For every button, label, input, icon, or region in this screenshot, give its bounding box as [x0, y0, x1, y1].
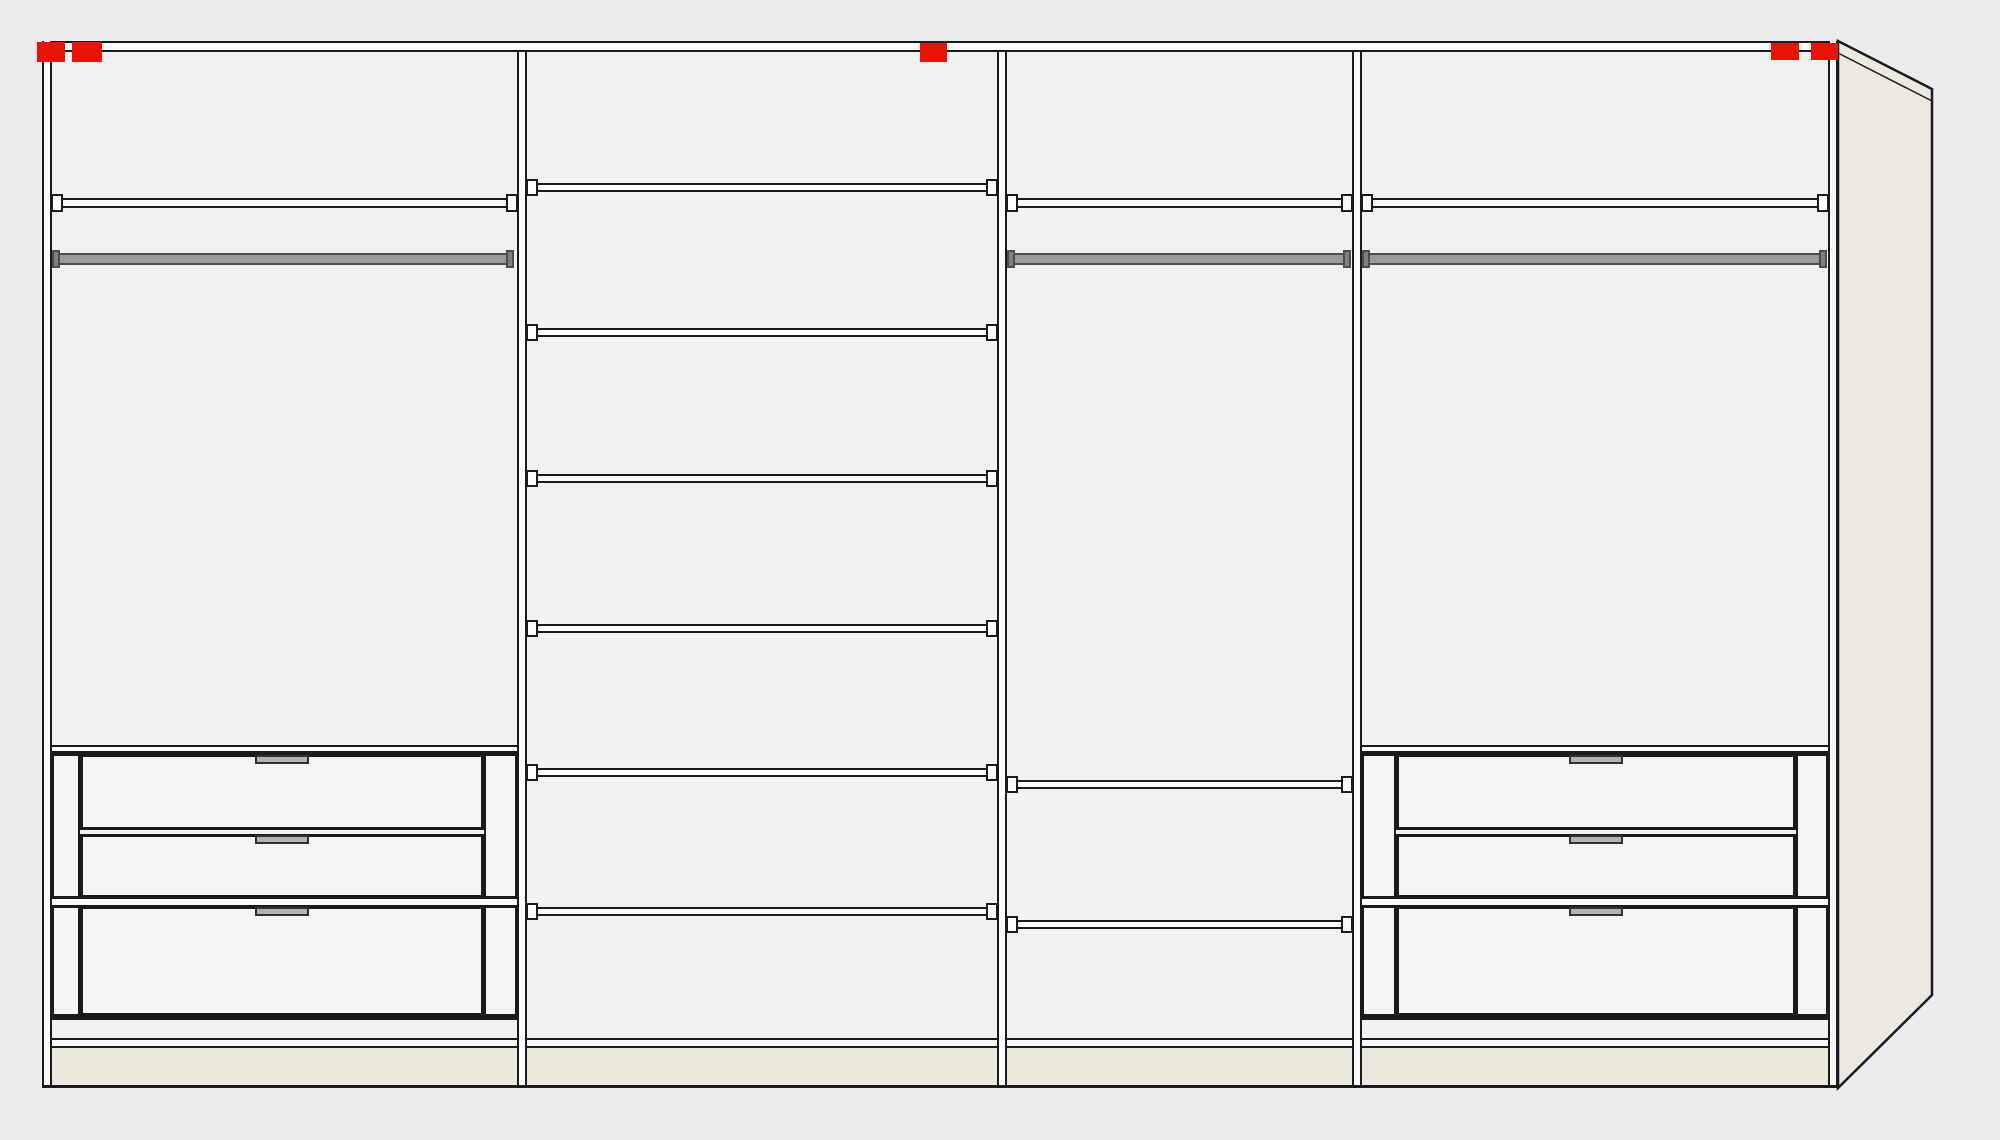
- drawer-unit-bottom-line: [1362, 1016, 1828, 1020]
- shelf-section-2[interactable]: [527, 624, 997, 633]
- frame-left-edge: [42, 41, 52, 1088]
- drawer-unit-top-section-4: [1362, 745, 1828, 754]
- shelf-section-2[interactable]: [527, 183, 997, 192]
- shelf-support: [1006, 194, 1018, 212]
- shelf-section-2[interactable]: [527, 768, 997, 777]
- clothes-rail-section-3[interactable]: [1013, 253, 1345, 265]
- shelf-section-4[interactable]: [1362, 198, 1828, 208]
- section-divider: [997, 52, 1007, 1085]
- section-divider: [517, 52, 527, 1085]
- drawer-stile: [1362, 906, 1396, 1016]
- shelf-support: [1361, 194, 1373, 212]
- shelf-section-2[interactable]: [527, 474, 997, 483]
- drawer-handle: [1569, 907, 1623, 916]
- shelf-support: [51, 194, 63, 212]
- wardrobe-configurator-canvas: [0, 0, 2000, 1140]
- marker-4[interactable]: [1771, 43, 1799, 60]
- shelf-section-1[interactable]: [52, 198, 517, 208]
- side-panel-face: [1838, 41, 1932, 1088]
- clothes-rail-section-4[interactable]: [1368, 253, 1821, 265]
- shelf-support: [526, 470, 538, 487]
- drawer-handle: [1569, 755, 1623, 764]
- drawer-handle: [255, 755, 309, 764]
- drawer-unit-top-section-1: [52, 745, 517, 754]
- drawer-stile: [1362, 754, 1396, 898]
- shelf-support: [526, 179, 538, 196]
- section-divider: [1352, 52, 1362, 1085]
- shelf-support: [526, 620, 538, 637]
- frame-right-edge: [1828, 41, 1838, 1088]
- drawer-stile: [52, 754, 80, 898]
- shelf-section-2[interactable]: [527, 907, 997, 916]
- frame-bottom-line: [42, 1085, 1838, 1088]
- shelf-section-3[interactable]: [1007, 198, 1352, 208]
- wardrobe-side-panel: [1830, 35, 1940, 1095]
- drawer-stile: [484, 754, 517, 898]
- drawer-section-4-1[interactable]: [1396, 754, 1796, 830]
- shelf-section-3[interactable]: [1007, 920, 1352, 929]
- wardrobe-front-view: [0, 0, 2000, 1140]
- drawer-stile: [1796, 754, 1828, 898]
- drawer-unit-bottom-line: [52, 1016, 517, 1020]
- bottom-shelf-band: [52, 1038, 1828, 1048]
- drawer-stile: [484, 906, 517, 1016]
- marker-1[interactable]: [37, 42, 65, 62]
- shelf-support: [526, 903, 538, 920]
- drawer-section-4-3[interactable]: [1396, 906, 1796, 1016]
- shelf-support: [526, 764, 538, 781]
- marker-5[interactable]: [1811, 43, 1838, 60]
- drawer-section-1-1[interactable]: [80, 754, 484, 830]
- drawer-handle: [1569, 835, 1623, 844]
- clothes-rail-section-1[interactable]: [58, 253, 508, 265]
- marker-3[interactable]: [920, 43, 947, 62]
- shelf-support: [526, 324, 538, 341]
- drawer-stile: [1796, 906, 1828, 1016]
- marker-2[interactable]: [72, 42, 102, 62]
- drawer-handle: [255, 835, 309, 844]
- drawer-stile: [52, 906, 80, 1016]
- plinth: [52, 1048, 1828, 1085]
- shelf-section-2[interactable]: [527, 328, 997, 337]
- drawer-section-1-3[interactable]: [80, 906, 484, 1016]
- shelf-section-3[interactable]: [1007, 780, 1352, 789]
- drawer-handle: [255, 907, 309, 916]
- shelf-support: [1006, 916, 1018, 933]
- shelf-support: [1006, 776, 1018, 793]
